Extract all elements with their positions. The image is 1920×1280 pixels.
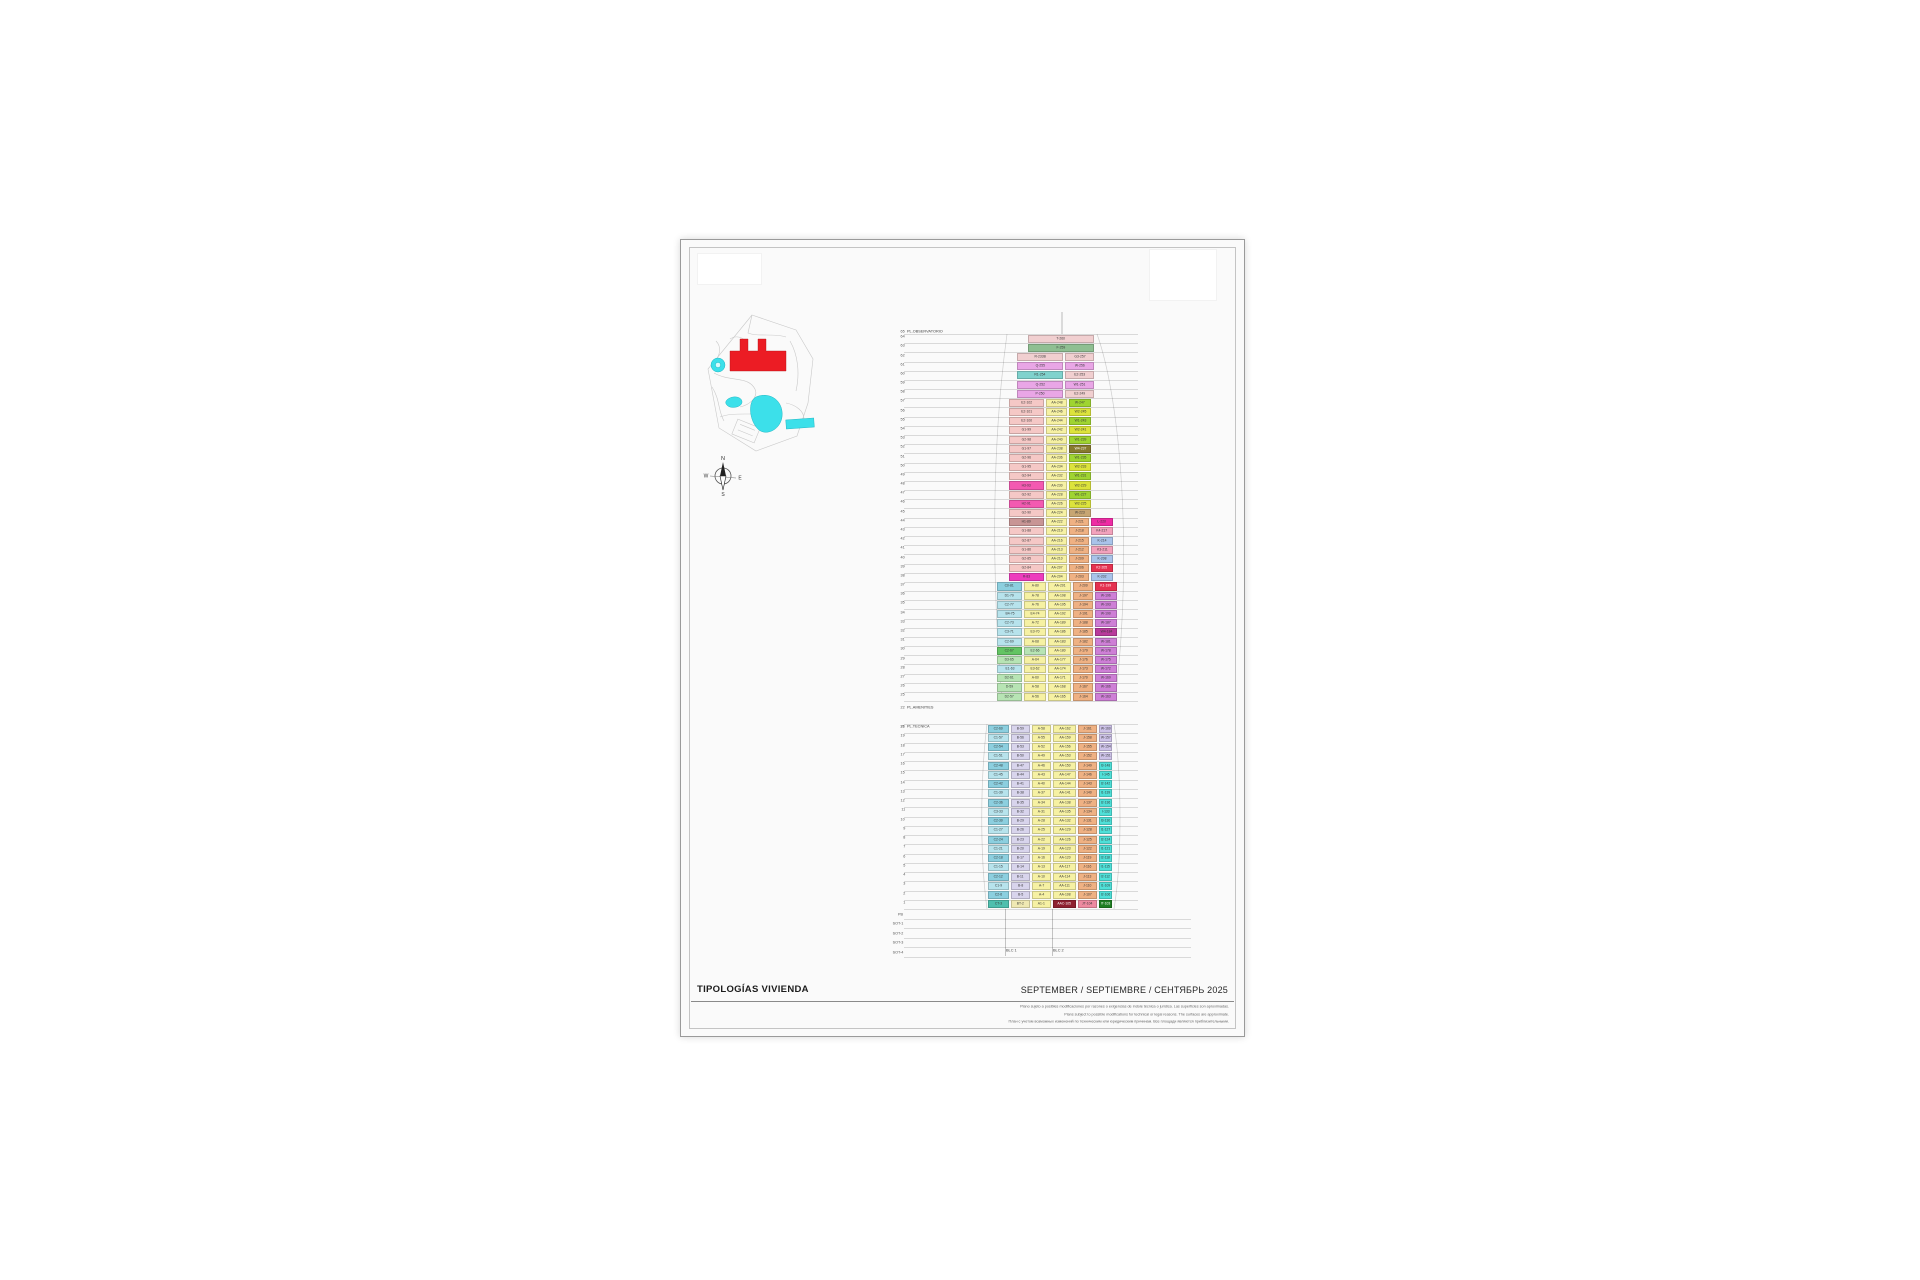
unit-cell: B-14	[1011, 863, 1030, 871]
unit-cell: R-83	[1009, 573, 1044, 581]
unit-cell: D2-57	[997, 693, 1022, 701]
unit-cell: J-116	[1078, 863, 1097, 871]
unit-cell: B-47	[1011, 762, 1030, 770]
unit-cell: C2-54	[988, 743, 1009, 751]
unit-cell: AA-162	[1053, 725, 1076, 733]
unit-cell: AA-177	[1048, 656, 1071, 664]
unit-cell: J-218	[1069, 527, 1089, 535]
unit-cell: J-143	[1078, 780, 1097, 788]
floor-number: 10	[875, 818, 905, 824]
floor-number: 1	[875, 901, 905, 907]
unit-cell: K2-205	[1091, 564, 1113, 572]
unit-cell: K-208	[1091, 555, 1113, 563]
floor-number: 47	[875, 491, 905, 497]
unit-cell: J-182	[1073, 638, 1093, 646]
unit-cell: AA-242	[1046, 426, 1067, 434]
unit-cell: C1-15	[988, 863, 1009, 871]
unit-cell: G2-92	[1009, 491, 1044, 499]
unit-cell: G1-97	[1009, 445, 1044, 453]
unit-cell: W2-229	[1069, 481, 1091, 489]
floor-number: 51	[875, 455, 905, 461]
unit-cell: B-41	[1011, 780, 1030, 788]
unit-cell: AA-153	[1053, 752, 1076, 760]
floor-number: 40	[875, 556, 905, 562]
floor-number: 32	[875, 629, 905, 635]
unit-cell: J-110	[1078, 882, 1097, 890]
unit-cell: W1-231	[1069, 472, 1091, 480]
unit-cell: AA-174	[1048, 665, 1071, 673]
floor-number: 50	[875, 464, 905, 470]
floor-number: 13	[875, 790, 905, 796]
unit-cell: AA-207	[1046, 564, 1067, 572]
unit-cell: A-52	[1032, 743, 1051, 751]
unit-cell: E2-101	[1009, 408, 1044, 416]
floor-number: 59	[875, 381, 905, 387]
unit-cell: AA-210	[1046, 555, 1067, 563]
unit-cell: A-49	[1032, 752, 1051, 760]
floor-number-special: 21	[875, 725, 905, 731]
unit-cell: J-149	[1078, 762, 1097, 770]
unit-cell: W4-237	[1069, 445, 1091, 453]
unit-cell: AA-186	[1048, 628, 1071, 636]
basement-label: SOT-3	[867, 941, 903, 947]
unit-cell: B-44	[1011, 771, 1030, 779]
unit-cell: J-134	[1078, 808, 1097, 816]
unit-cell: AA-132	[1053, 817, 1076, 825]
floor-number: 26	[875, 684, 905, 690]
unit-cell: C2-67	[997, 647, 1022, 655]
floor-number: 8	[875, 836, 905, 842]
unit-cell: G1-86	[1009, 546, 1044, 554]
unit-cell: J-200	[1073, 582, 1093, 590]
unit-cell: A-78	[1024, 592, 1046, 600]
unit-cell: E2-100	[1009, 417, 1044, 425]
unit-cell: J-128	[1078, 826, 1097, 834]
unit-cell: C2-77	[997, 601, 1022, 609]
unit-cell: A-31	[1032, 808, 1051, 816]
unit-cell: B-50	[1011, 752, 1030, 760]
unit-cell: H1-89	[1009, 518, 1044, 526]
unit-cell: B-20	[1011, 845, 1030, 853]
unit-cell: A-58	[1032, 725, 1051, 733]
unit-cell: AA-238	[1046, 445, 1067, 453]
unit-cell: AA-135	[1053, 808, 1076, 816]
unit-cell: AA-141	[1053, 789, 1076, 797]
unit-cell: W-223	[1069, 509, 1091, 517]
floor-number: 41	[875, 546, 905, 552]
unit-cell: W4-184	[1095, 628, 1117, 636]
unit-cell: AA-195	[1048, 601, 1071, 609]
unit-cell: A-22	[1032, 836, 1051, 844]
unit-cell: W-175	[1095, 656, 1117, 664]
unit-cell: I2-118	[1099, 854, 1112, 862]
unit-cell: AA-117	[1053, 863, 1076, 871]
floor-number: 28	[875, 666, 905, 672]
floor-number: 14	[875, 781, 905, 787]
unit-cell: C2-6	[988, 891, 1009, 899]
unit-cell: C2-36	[988, 799, 1009, 807]
unit-cell: A-76	[1024, 601, 1046, 609]
unit-cell: C2-18	[988, 854, 1009, 862]
unit-cell: C2-60	[988, 725, 1009, 733]
unit-cell: G2-94	[1009, 472, 1044, 480]
unit-cell: C1-27	[988, 826, 1009, 834]
block-label: BLC 2	[1053, 949, 1070, 955]
unit-cell: I2-112	[1099, 873, 1112, 881]
unit-cell: A-7	[1032, 882, 1051, 890]
unit-cell: A-46	[1032, 762, 1051, 770]
unit-cell: AA-219	[1046, 527, 1067, 535]
unit-cell: J-146	[1078, 771, 1097, 779]
title-block: TIPOLOGÍAS VIVIENDA SEPTEMBER / SEPTIEMB…	[697, 984, 1228, 995]
unit-cell: AA-216	[1046, 537, 1067, 545]
unit-cell: R1-254	[1017, 371, 1063, 379]
unit-cell: C1-45	[988, 771, 1009, 779]
unit-cell: AA-159	[1053, 734, 1076, 742]
unit-cell: A-13	[1032, 863, 1051, 871]
unit-cell: J-122	[1078, 845, 1097, 853]
floor-number: 12	[875, 799, 905, 805]
floor-number: 38	[875, 574, 905, 580]
unit-cell: J-206	[1069, 564, 1089, 572]
unit-cell: A-40	[1032, 780, 1051, 788]
unit-cell: I-145	[1099, 771, 1112, 779]
floor-number: 3	[875, 882, 905, 888]
unit-cell: J-131	[1078, 817, 1097, 825]
unit-cell: D1-79	[997, 592, 1022, 600]
unit-cell: AA-246	[1046, 408, 1067, 416]
unit-cell: AA-156	[1053, 743, 1076, 751]
unit-cell: W1-235	[1069, 454, 1091, 462]
unit-cell: A-56	[1024, 693, 1046, 701]
unit-cell: G2-96	[1009, 454, 1044, 462]
unit-cell: W-181	[1095, 638, 1117, 646]
unit-cell: I2-106	[1099, 891, 1112, 899]
unit-cell: J-161	[1078, 725, 1097, 733]
unit-cell: G2-98	[1009, 436, 1044, 444]
unit-cell: B-56	[1011, 734, 1030, 742]
unit-cell: AA-248	[1046, 399, 1067, 407]
unit-cell: P-250	[1017, 390, 1063, 398]
unit-cell: A-37	[1032, 789, 1051, 797]
unit-cell: J-212	[1069, 546, 1089, 554]
unit-cell: J-125	[1078, 836, 1097, 844]
unit-cell: B-32	[1011, 808, 1030, 816]
floor-number: 56	[875, 409, 905, 415]
unit-cell: K1-199	[1095, 582, 1117, 590]
unit-cell: E2-249	[1065, 390, 1094, 398]
unit-cell: L-220	[1091, 518, 1113, 526]
unit-cell: A-16	[1032, 854, 1051, 862]
floor-number: 37	[875, 583, 905, 589]
floor-plate-name: PL.OBSERVATORIO	[907, 330, 963, 336]
unit-cell: K3-211	[1091, 546, 1113, 554]
unit-cell: W-247	[1069, 399, 1091, 407]
unit-cell: J-188	[1073, 619, 1093, 627]
unit-cell: AA-165	[1048, 693, 1071, 701]
unit-cell: J-194	[1073, 601, 1093, 609]
unit-cell: A-58	[1024, 683, 1046, 691]
unit-cell: J-176	[1073, 656, 1093, 664]
unit-cell: J-164	[1073, 693, 1093, 701]
unit-cell: D3-65	[997, 656, 1022, 664]
floor-number: 11	[875, 808, 905, 814]
floor-number: 52	[875, 445, 905, 451]
unit-cell: E2-102	[1009, 399, 1044, 407]
unit-cell: E1-63	[997, 665, 1022, 673]
unit-cell: J-119	[1078, 854, 1097, 862]
unit-cell: J-140	[1078, 789, 1097, 797]
floor-number: 33	[875, 620, 905, 626]
unit-cell: AA-114	[1053, 873, 1076, 881]
unit-cell: J-107	[1078, 891, 1097, 899]
drawing-sheet: N W E S 64T-26063F-25962R-233BG3-25761Q-…	[680, 239, 1245, 1037]
unit-cell: C1-51	[988, 752, 1009, 760]
unit-cell: G2-87	[1009, 537, 1044, 545]
unit-cell: W-169	[1095, 674, 1117, 682]
unit-cell: W2-225	[1069, 500, 1091, 508]
floor-number: 49	[875, 473, 905, 479]
floor-number: 25	[875, 693, 905, 699]
unit-cell: A-80	[1024, 582, 1046, 590]
unit-cell: I1-139	[1099, 789, 1112, 797]
unit-cell: J-167	[1073, 683, 1093, 691]
floor-number: 34	[875, 611, 905, 617]
floor-number: 61	[875, 363, 905, 369]
unit-cell: E3-70	[1024, 628, 1046, 636]
unit-cell: K4-217	[1091, 527, 1113, 535]
unit-cell: AA-228	[1046, 491, 1067, 499]
unit-cell: A-25	[1032, 826, 1051, 834]
unit-cell: B-38	[1011, 789, 1030, 797]
unit-cell: BT-2	[1011, 900, 1030, 908]
basement-line	[904, 938, 1191, 939]
unit-cell: C1-39	[988, 789, 1009, 797]
unit-cell: C2-24	[988, 836, 1009, 844]
unit-cell: G1-99	[1009, 426, 1044, 434]
unit-cell: W-196	[1095, 592, 1117, 600]
unit-cell: A-4	[1032, 891, 1051, 899]
unit-cell: A1-1	[1032, 900, 1051, 908]
unit-cell: C2-42	[988, 780, 1009, 788]
unit-cell: B-11	[1011, 873, 1030, 881]
unit-cell: I1-127	[1099, 826, 1112, 834]
unit-cell: AA-204	[1046, 573, 1067, 581]
unit-cell: IT-103	[1099, 900, 1112, 908]
unit-cell: AA-126	[1053, 836, 1076, 844]
unit-cell: B-59	[1011, 725, 1030, 733]
unit-cell: I2-124	[1099, 836, 1112, 844]
unit-cell: J-221	[1069, 518, 1089, 526]
unit-cell: AA-240	[1046, 436, 1067, 444]
disclaimer-line-ru: План с учетом возможных изменений по тех…	[964, 1020, 1229, 1025]
unit-cell: AA-171	[1048, 674, 1071, 682]
unit-cell: F-259	[1028, 344, 1094, 352]
unit-cell: AA-111	[1053, 882, 1076, 890]
unit-cell: R-233B	[1017, 353, 1063, 361]
unit-cell: A-68	[1024, 638, 1046, 646]
title-rule	[691, 1001, 1234, 1002]
unit-cell: AA-224	[1046, 509, 1067, 517]
unit-cell: AA-201	[1048, 582, 1071, 590]
unit-cell: JT-104	[1078, 900, 1097, 908]
unit-cell: G2-85	[1009, 555, 1044, 563]
unit-cell: I-133	[1099, 808, 1112, 816]
floor-number: 27	[875, 675, 905, 681]
unit-cell: AA-168	[1048, 683, 1071, 691]
floor-number-special: 22	[875, 706, 905, 712]
unit-cell: AA-180	[1048, 647, 1071, 655]
unit-cell: C2-48	[988, 762, 1009, 770]
unit-cell: B-53	[1011, 743, 1030, 751]
unit-cell: AA-222	[1046, 518, 1067, 526]
unit-cell: W-154	[1099, 743, 1112, 751]
unit-cell: AA-226	[1046, 500, 1067, 508]
unit-cell: AA-244	[1046, 417, 1067, 425]
unit-cell: W-151	[1099, 752, 1112, 760]
floor-number: 57	[875, 399, 905, 405]
unit-cell: B-29	[1011, 817, 1030, 825]
unit-cell: AA-144	[1053, 780, 1076, 788]
floor-number: 4	[875, 873, 905, 879]
unit-cell: G2-90	[1009, 509, 1044, 517]
floor-number: 43	[875, 528, 905, 534]
unit-cell: C2-69	[997, 638, 1022, 646]
basement-line	[904, 919, 1191, 920]
unit-cell: W1-243	[1069, 417, 1091, 425]
unit-cell: C2-73	[997, 619, 1022, 627]
unit-cell: AA-150	[1053, 762, 1076, 770]
unit-cell: AA-189	[1048, 619, 1071, 627]
floor-number: 58	[875, 390, 905, 396]
floor-plate-name: PL.AMENITIES	[907, 706, 948, 712]
unit-cell: B-35	[1011, 799, 1030, 807]
unit-cell: G3-257	[1065, 353, 1094, 361]
unit-cell: W2-245	[1069, 408, 1091, 416]
unit-cell: I2-136	[1099, 799, 1112, 807]
unit-cell: AA-213	[1046, 546, 1067, 554]
floor-number: 55	[875, 418, 905, 424]
block-label: BLC 1	[1006, 949, 1023, 955]
floor-number: 63	[875, 344, 905, 350]
disclaimer-line-en: Plans subject to possible modifications …	[964, 1013, 1229, 1018]
floor-number: 29	[875, 657, 905, 663]
unit-cell: W-166	[1095, 683, 1117, 691]
unit-cell: W2-241	[1069, 426, 1091, 434]
floor-line	[904, 343, 1138, 344]
unit-cell: W-187	[1095, 619, 1117, 627]
floor-number: 2	[875, 892, 905, 898]
unit-cell: I1-115	[1099, 863, 1112, 871]
canvas: { "sheet": { "title": "TIPOLOGÍAS VIVIEN…	[0, 0, 1920, 1280]
unit-cell: A-34	[1032, 799, 1051, 807]
unit-cell: C3-71	[997, 628, 1022, 636]
unit-cell: Q-255	[1017, 362, 1063, 370]
unit-cell: J-152	[1078, 752, 1097, 760]
unit-cell: CT-3	[988, 900, 1009, 908]
unit-cell: G1-95	[1009, 463, 1044, 471]
disclaimer-text: Plano sujeto a posibles modificaciones p…	[801, 1005, 1229, 1028]
unit-cell: D2-61	[997, 674, 1022, 682]
basement-line	[904, 947, 1191, 948]
block-base-line	[904, 909, 1138, 910]
unit-cell: AA-198	[1048, 592, 1071, 600]
unit-cell: I3-130	[1099, 817, 1112, 825]
unit-cell: W-256	[1065, 362, 1094, 370]
floor-number: 19	[875, 734, 905, 740]
floor-number: 18	[875, 744, 905, 750]
unit-cell: W-172	[1095, 665, 1117, 673]
unit-cell: A-28	[1032, 817, 1051, 825]
disclaimer-line-es: Plano sujeto a posibles modificaciones p…	[964, 1005, 1229, 1010]
unit-cell: B4-75	[997, 610, 1022, 618]
unit-cell: J-191	[1073, 610, 1093, 618]
unit-cell: W-163	[1095, 693, 1117, 701]
unit-cell: J-203	[1069, 573, 1089, 581]
unit-cell: B-5	[1011, 891, 1030, 899]
unit-cell: AA-236	[1046, 454, 1067, 462]
floor-number: 39	[875, 565, 905, 571]
floor-number: 6	[875, 855, 905, 861]
tower-diagram: 64T-26063F-25962R-233BG3-25761Q-255W-256…	[681, 240, 1244, 1036]
unit-cell: T-260	[1028, 335, 1094, 343]
unit-cell: J-215	[1069, 537, 1089, 545]
floor-plate-name: PL.TECNICA	[907, 725, 942, 731]
basement-label: SOT-4	[867, 951, 903, 957]
floor-number: 9	[875, 827, 905, 833]
floor-number-special: 65	[875, 330, 905, 336]
tower-base-line	[904, 701, 1138, 702]
floor-number: 30	[875, 647, 905, 653]
unit-cell: B-23	[1011, 836, 1030, 844]
unit-cell: H3-93	[1009, 481, 1044, 489]
unit-cell: D-59	[997, 683, 1022, 691]
unit-cell: B-17	[1011, 854, 1030, 862]
unit-cell: AA-129	[1053, 826, 1076, 834]
floor-number: 17	[875, 753, 905, 759]
basement-label: SOT-2	[867, 932, 903, 938]
unit-cell: W1-251	[1065, 381, 1094, 389]
unit-cell: A-10	[1032, 873, 1051, 881]
floor-number: 44	[875, 519, 905, 525]
unit-cell: C1-21	[988, 845, 1009, 853]
floor-number: 45	[875, 510, 905, 516]
floor-number: 60	[875, 372, 905, 378]
unit-cell: J-155	[1078, 743, 1097, 751]
unit-cell: K-214	[1091, 537, 1113, 545]
unit-cell: W-178	[1095, 647, 1117, 655]
floor-number: 42	[875, 537, 905, 543]
unit-cell: C2-30	[988, 817, 1009, 825]
unit-cell: J-137	[1078, 799, 1097, 807]
unit-cell: J-170	[1073, 674, 1093, 682]
unit-cell: Q-252	[1017, 381, 1063, 389]
floor-number: 35	[875, 601, 905, 607]
unit-cell: B-26	[1011, 826, 1030, 834]
floor-number: 54	[875, 427, 905, 433]
unit-cell: W-157	[1099, 734, 1112, 742]
unit-cell: K-202	[1091, 573, 1113, 581]
basement-label: SOT-1	[867, 922, 903, 928]
unit-cell: W-160	[1099, 725, 1112, 733]
unit-cell: I1-109	[1099, 882, 1112, 890]
floor-number: 36	[875, 592, 905, 598]
unit-cell: AA-138	[1053, 799, 1076, 807]
floor-number: 5	[875, 864, 905, 870]
floor-number: 15	[875, 771, 905, 777]
unit-cell: AA-123	[1053, 845, 1076, 853]
unit-cell: AA-232	[1046, 472, 1067, 480]
